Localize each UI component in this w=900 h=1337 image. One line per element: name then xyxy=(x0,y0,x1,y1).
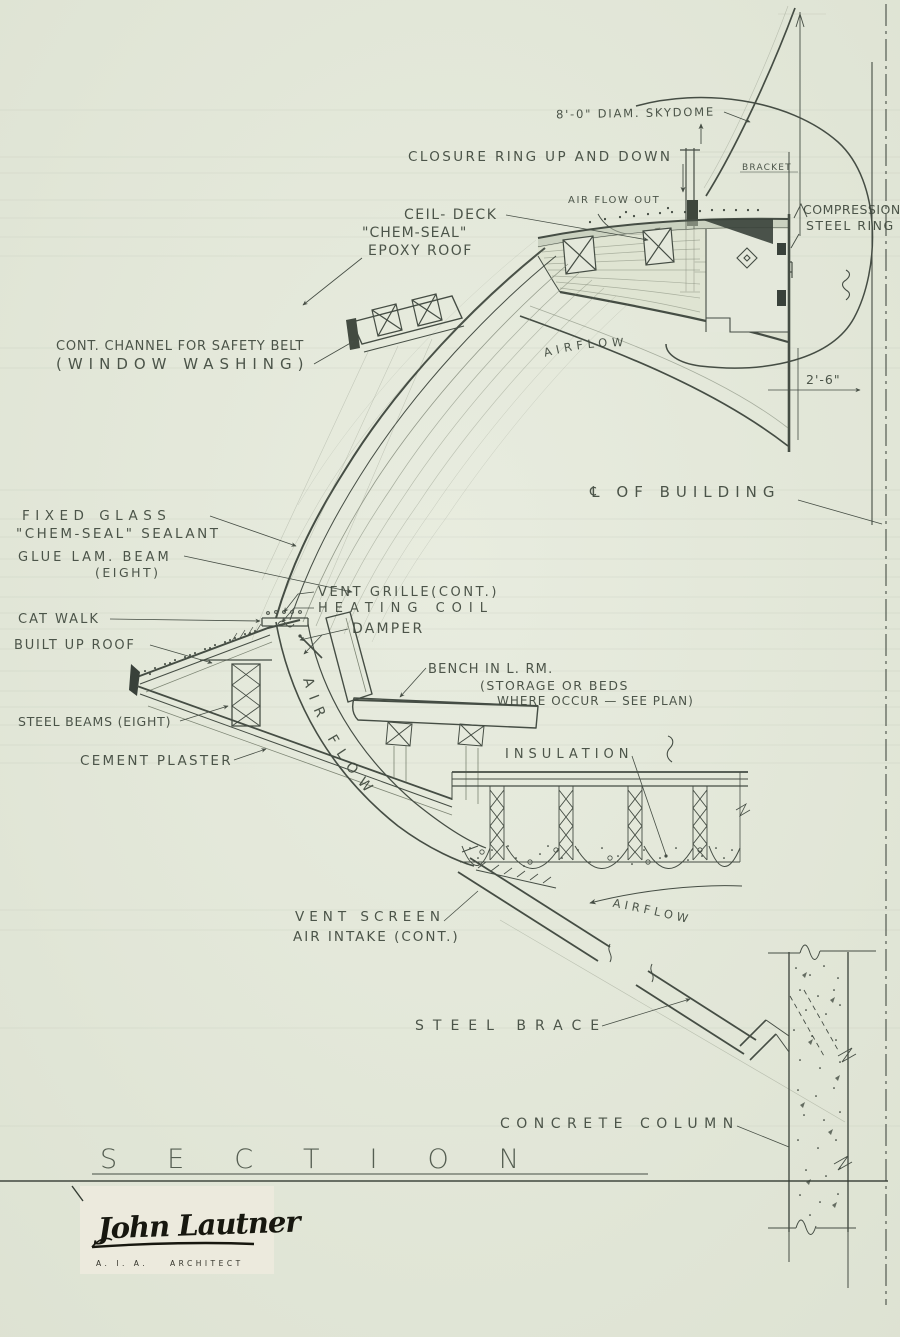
label-air-flow-out: AIR FLOW OUT xyxy=(568,195,660,206)
label-steel-beams: STEEL BEAMS (EIGHT) xyxy=(18,714,171,729)
label-fixed-glass-1: FIXED GLASS xyxy=(22,508,171,524)
label-concrete-column: CONCRETE COLUMN xyxy=(500,1116,740,1132)
label-chem-seal: "CHEM-SEAL" xyxy=(362,225,467,241)
label-fixed-glass-2: "CHEM-SEAL" SEALANT xyxy=(16,526,220,542)
label-skydome: 8'-0" DIAM. SKYDOME xyxy=(556,105,715,122)
label-steel-brace: STEEL BRACE xyxy=(415,1018,608,1034)
label-safety-belt-2: (WINDOW WASHING) xyxy=(56,355,309,373)
signature-block: John Lautner A. I. A. ARCHITECT xyxy=(72,1186,304,1274)
credential-org: A. I. A. xyxy=(96,1259,148,1268)
label-heating-coil: HEATING COIL xyxy=(318,601,494,616)
credential-role: ARCHITECT xyxy=(170,1259,244,1268)
label-insulation: INSULATION xyxy=(505,747,633,762)
label-built-up-roof: BUILT UP ROOF xyxy=(14,638,136,653)
label-cat-walk: CAT WALK xyxy=(18,612,100,627)
label-vent-screen-1: VENT SCREEN xyxy=(295,909,445,925)
label-compression-1: COMPRESSION xyxy=(803,202,900,217)
label-bench-1: BENCH IN L. RM. xyxy=(428,662,553,677)
label-glue-lam-1: GLUE LAM. BEAM xyxy=(18,550,172,565)
label-safety-belt-1: CONT. CHANNEL FOR SAFETY BELT xyxy=(56,339,304,354)
label-damper: DAMPER xyxy=(352,621,424,637)
label-dim-2-6: 2'-6" xyxy=(806,372,841,387)
label-cement-plaster: CEMENT PLASTER xyxy=(80,753,233,769)
label-vent-screen-2: AIR INTAKE (CONT.) xyxy=(293,929,460,945)
drawing-sheet: 8'-0" DIAM. SKYDOME CLOSURE RING UP AND … xyxy=(0,0,900,1337)
label-compression-2: STEEL RING xyxy=(806,218,895,233)
label-bracket: BRACKET xyxy=(742,163,792,173)
label-bench-3: WHERE OCCUR — SEE PLAN) xyxy=(497,694,694,708)
label-glue-lam-2: (EIGHT) xyxy=(95,565,161,580)
label-epoxy-roof: EPOXY ROOF xyxy=(368,243,473,259)
label-closure-ring: CLOSURE RING UP AND DOWN xyxy=(408,149,672,165)
label-centerline: ℄ OF BUILDING xyxy=(589,483,780,501)
label-bench-2: (STORAGE OR BEDS xyxy=(480,678,629,693)
label-vent-grille: VENT GRILLE(CONT.) xyxy=(318,585,499,600)
sheet-title: SECTION xyxy=(100,1144,569,1175)
label-ceil-deck: CEIL- DECK xyxy=(404,207,497,223)
